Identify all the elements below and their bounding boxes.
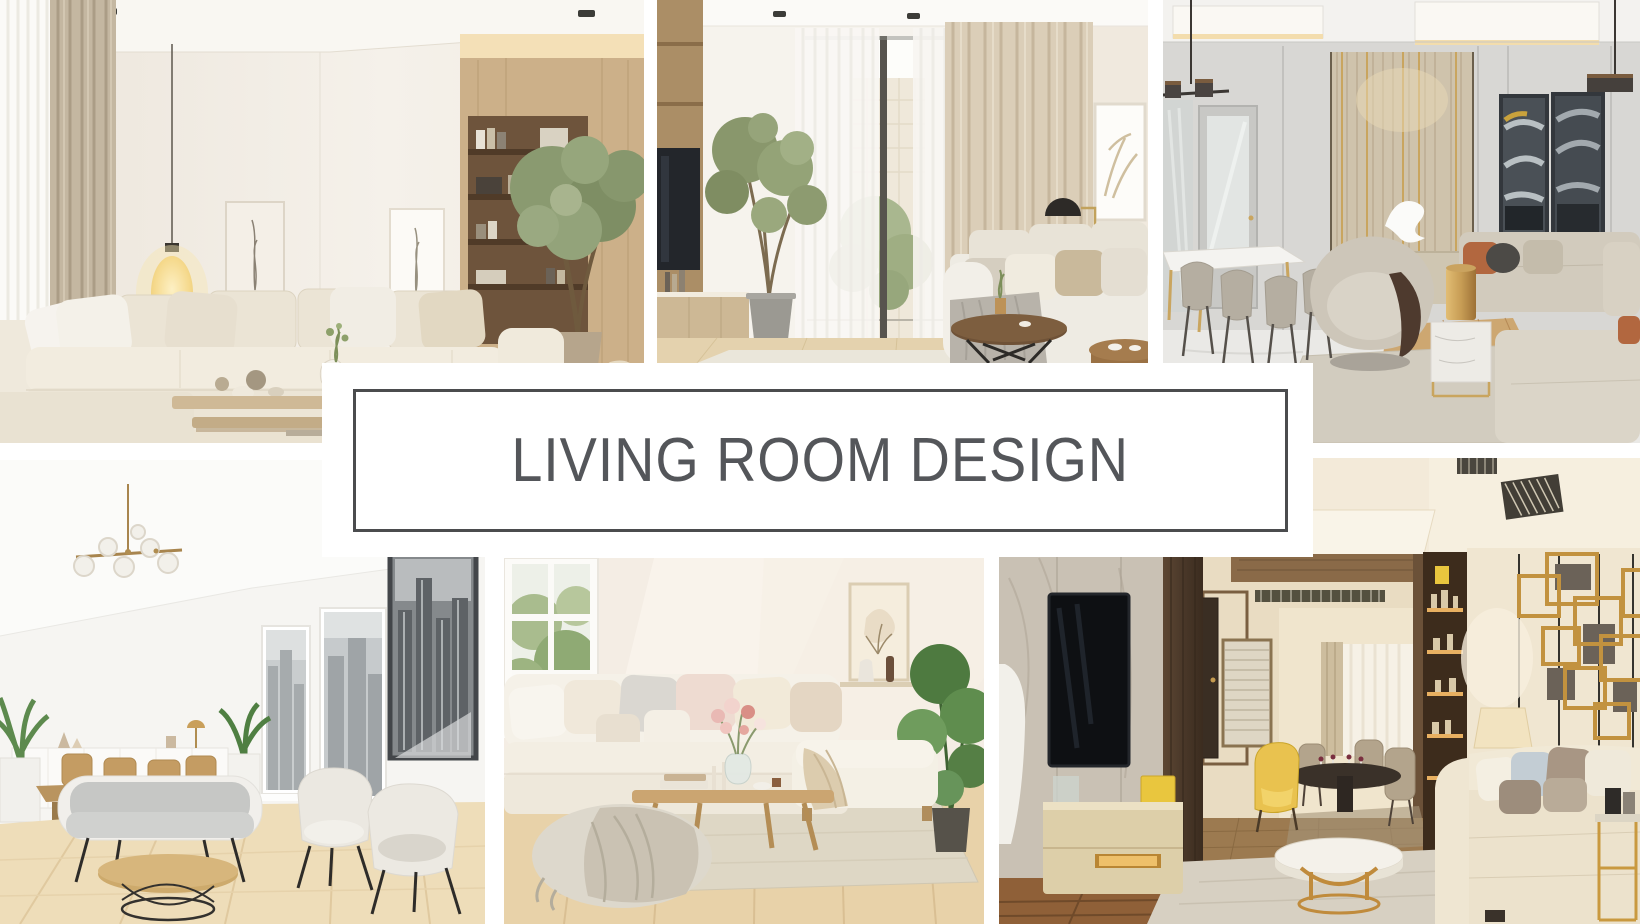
sofa-foreground <box>1495 330 1640 443</box>
ceiling-spotlight <box>578 10 595 17</box>
city-art <box>390 554 476 758</box>
yellow-decor <box>1435 566 1449 584</box>
photo-bottom-middle-art <box>504 558 984 924</box>
wood-beam <box>1231 554 1431 582</box>
ceiling-vent <box>1255 590 1385 602</box>
sofa <box>1459 232 1640 316</box>
sheer-window <box>1343 644 1413 756</box>
title-banner-frame: LIVING ROOM DESIGN <box>353 389 1288 532</box>
plant-pot <box>932 808 970 852</box>
ac-grille-small <box>1457 458 1497 474</box>
collage-canvas: LIVING ROOM DESIGN <box>0 0 1640 924</box>
blinds-window <box>1223 640 1271 746</box>
title-banner: LIVING ROOM DESIGN <box>322 363 1313 557</box>
ac-grille <box>1501 474 1564 520</box>
photo-top-middle <box>657 0 1148 363</box>
wall-art <box>1095 104 1145 220</box>
curtain <box>1321 642 1343 756</box>
abstract-art <box>1501 94 1603 236</box>
yellow-box <box>1141 776 1175 804</box>
photo-top-middle-art <box>657 0 1148 363</box>
cream-sofa <box>1435 745 1640 924</box>
wall-frame-shelf <box>840 584 920 687</box>
ceiling <box>1163 0 1640 45</box>
page-title: LIVING ROOM DESIGN <box>512 425 1130 496</box>
photo-bottom-middle <box>504 558 984 924</box>
